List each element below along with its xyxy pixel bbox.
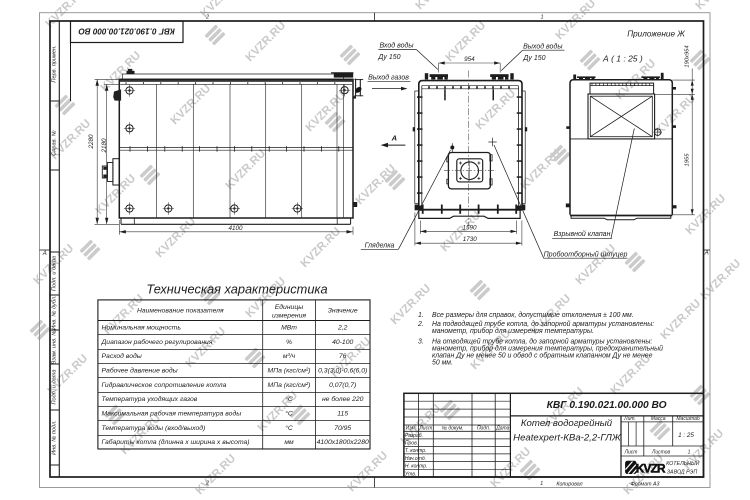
svg-text:На подводящей трубе котла, до: На подводящей трубе котла, до запорной а… [432, 320, 654, 328]
svg-text:МПа (кгс/см²): МПа (кгс/см²) [268, 367, 311, 374]
svg-text:клапан Ду не менее 50 и обвод: клапан Ду не менее 50 и обвод с обратным… [432, 351, 653, 359]
svg-text:КВГ 0.190.021.00.000 ВО: КВГ 0.190.021.00.000 ВО [547, 400, 667, 411]
svg-text:МПа (кгс/см²): МПа (кгс/см²) [268, 382, 311, 389]
svg-text:мм: мм [284, 439, 294, 446]
svg-text:Единицы: Единицы [275, 303, 303, 311]
svg-text:Справ. №: Справ. № [52, 130, 58, 155]
svg-text:KVZR.RU: KVZR.RU [659, 297, 704, 342]
svg-text:А: А [391, 134, 397, 143]
svg-text:Лист: Лист [418, 426, 432, 432]
svg-text:Выход воды: Выход воды [523, 42, 563, 50]
svg-text:Пров.: Пров. [405, 441, 418, 447]
svg-text:2.: 2. [417, 321, 424, 328]
svg-text:4100: 4100 [228, 225, 243, 232]
svg-text:измерения: измерения [272, 313, 306, 320]
svg-text:Перв. примен.: Перв. примен. [52, 45, 58, 82]
svg-text:Максимальная рабочая температу: Максимальная рабочая температура воды [102, 409, 242, 417]
svg-text:Номинальная мощность: Номинальная мощность [102, 324, 182, 331]
svg-text:А: А [42, 251, 47, 257]
svg-text:Т. контр.: Т. контр. [405, 448, 427, 454]
svg-text:KVZR.RU: KVZR.RU [154, 215, 199, 260]
svg-text:4100х1800х2280: 4100х1800х2280 [317, 439, 369, 446]
svg-text:Лист: Лист [624, 449, 638, 455]
svg-text:м³/ч: м³/ч [283, 353, 296, 360]
svg-text:KVZR.RU: KVZR.RU [224, 147, 269, 192]
svg-text:Ду 150: Ду 150 [522, 55, 545, 62]
svg-text:40-100: 40-100 [332, 339, 353, 346]
svg-text:Н. контр.: Н. контр. [405, 464, 428, 470]
svg-text:Утв.: Утв. [405, 471, 416, 477]
svg-text:Техническая характеристика: Техническая характеристика [146, 282, 327, 297]
svg-text:Разраб.: Разраб. [405, 433, 423, 439]
svg-text:954: 954 [464, 56, 475, 63]
svg-text:1: 1 [540, 481, 543, 487]
svg-text:Подп. и дата: Подп. и дата [52, 369, 58, 404]
svg-text:0,07(0,7): 0,07(0,7) [329, 382, 356, 389]
svg-text:0,3(3,0)-0,6(6,0): 0,3(3,0)-0,6(6,0) [318, 367, 367, 374]
svg-text:KVZR.RU: KVZR.RU [414, 0, 459, 12]
svg-text:KVZR.RU: KVZR.RU [94, 172, 139, 217]
svg-text:МВт: МВт [281, 324, 297, 331]
svg-text:Значение: Значение [328, 308, 358, 315]
svg-text:2180: 2180 [101, 138, 108, 154]
svg-text:2,2: 2,2 [337, 324, 348, 331]
svg-text:1955: 1955 [685, 153, 691, 167]
svg-text:KVZR.RU: KVZR.RU [574, 242, 619, 287]
svg-text:Взам. инв. №: Взам. инв. № [52, 330, 58, 365]
svg-text:Наименование показателя: Наименование показателя [137, 308, 224, 315]
svg-text:Все размеры для справок, допус: Все размеры для справок, допустимые откл… [432, 311, 634, 319]
svg-text:Формат А3: Формат А3 [631, 481, 660, 487]
svg-text:не более 220: не более 220 [322, 395, 364, 403]
svg-text:KVZR.RU: KVZR.RU [194, 452, 239, 497]
svg-text:Рабочее давление воды: Рабочее давление воды [102, 366, 178, 374]
svg-text:Выход газов: Выход газов [368, 74, 409, 82]
svg-text:А ( 1 : 25 ): А ( 1 : 25 ) [602, 54, 643, 64]
svg-text:KVZR.RU: KVZR.RU [299, 225, 344, 270]
svg-text:°С: °С [285, 409, 293, 417]
svg-text:%: % [286, 339, 292, 346]
svg-text:Нач.отд.: Нач.отд. [405, 456, 426, 462]
svg-text:Котел водогрейный: Котел водогрейный [521, 418, 613, 429]
svg-text:Температура уходящих газов: Температура уходящих газов [102, 395, 198, 403]
svg-text:Масштаб: Масштаб [676, 416, 700, 422]
svg-text:Диапазон рабочего регулировани: Диапазон рабочего регулирования [101, 338, 213, 346]
svg-text:Взрывной клапан: Взрывной клапан [554, 230, 611, 238]
svg-text:КОТЕЛЬНЫЙ: КОТЕЛЬНЫЙ [666, 459, 700, 467]
svg-text:Вход воды: Вход воды [380, 42, 415, 50]
svg-text:Расход воды: Расход воды [102, 352, 142, 360]
svg-text:KVZR.RU: KVZR.RU [474, 87, 519, 132]
svg-text:1: 1 [540, 15, 543, 21]
svg-text:°С: °С [285, 424, 293, 432]
svg-text:1: 1 [688, 449, 691, 455]
svg-text:1730: 1730 [463, 236, 478, 243]
svg-text:ЗАВОД РЭП: ЗАВОД РЭП [667, 470, 698, 476]
svg-text:2: 2 [205, 481, 209, 487]
svg-text:115: 115 [337, 410, 348, 417]
svg-text:Гляделка: Гляделка [365, 241, 395, 249]
svg-text:1 : 25: 1 : 25 [678, 432, 694, 439]
svg-text:2: 2 [205, 15, 209, 21]
svg-text:KVZR.RU: KVZR.RU [119, 412, 164, 457]
svg-text:А: А [704, 251, 709, 257]
svg-text:°С: °С [285, 395, 293, 403]
svg-text:KVZR.RU: KVZR.RU [99, 49, 144, 94]
svg-text:КВГ 0.190.021.00.000 ВО: КВГ 0.190.021.00.000 ВО [78, 27, 175, 36]
svg-text:50 мм.: 50 мм. [432, 359, 453, 366]
svg-text:Температура воды (вход/выход): Температура воды (вход/выход) [102, 424, 206, 432]
svg-text:На отводящей трубе котла, до з: На отводящей трубе котла, до запорной ар… [432, 337, 652, 345]
svg-text:№ докум.: № докум. [442, 426, 464, 432]
svg-text:KVZR.RU: KVZR.RU [694, 0, 739, 12]
svg-text:76: 76 [339, 353, 347, 360]
svg-text:Ду 150: Ду 150 [377, 54, 400, 61]
svg-text:Габариты котла (длинна х ширин: Габариты котла (длинна х ширина х высота… [102, 438, 250, 446]
svg-text:KVZR.RU: KVZR.RU [304, 89, 349, 134]
svg-text:манометр, прибор для измерения: манометр, прибор для измерения температу… [432, 344, 663, 352]
svg-text:190х954: 190х954 [685, 45, 691, 67]
svg-text:Листов: Листов [651, 449, 671, 455]
svg-text:Дата: Дата [495, 426, 509, 432]
svg-text:KVZR: KVZR [636, 462, 666, 476]
svg-text:70/95: 70/95 [334, 425, 351, 432]
svg-text:Heatexpert-КВа-2,2-ГЛЖ: Heatexpert-КВа-2,2-ГЛЖ [513, 433, 622, 444]
svg-text:Гидравлическое сопротивление к: Гидравлическое сопротивление котла [102, 381, 227, 389]
svg-text:Инв. № дубл.: Инв. № дубл. [52, 295, 58, 329]
svg-text:Масса: Масса [651, 416, 666, 422]
svg-text:Копировал: Копировал [556, 481, 582, 487]
svg-text:KVZR.RU: KVZR.RU [389, 282, 434, 327]
svg-text:Приложение Ж: Приложение Ж [627, 30, 685, 39]
svg-text:Пробоотборный штуцер: Пробоотборный штуцер [544, 251, 628, 259]
svg-text:манометр, прибор для измерения: манометр, прибор для измерения температу… [432, 327, 594, 335]
svg-text:KVZR.RU: KVZR.RU [169, 82, 214, 127]
svg-text:Изм.: Изм. [406, 426, 417, 432]
svg-text:1.: 1. [418, 312, 424, 319]
svg-text:Подп.: Подп. [477, 426, 490, 432]
svg-text:2280: 2280 [88, 134, 95, 150]
svg-text:KVZR.RU: KVZR.RU [699, 257, 744, 302]
svg-text:Инв. № подл.: Инв. № подл. [52, 420, 58, 455]
svg-text:1590: 1590 [462, 225, 477, 232]
svg-text:KVZR.RU: KVZR.RU [244, 19, 289, 64]
svg-text:3.: 3. [418, 338, 424, 345]
svg-text:Подп. и дата: Подп. и дата [52, 256, 58, 291]
svg-text:Лит.: Лит. [623, 416, 636, 422]
